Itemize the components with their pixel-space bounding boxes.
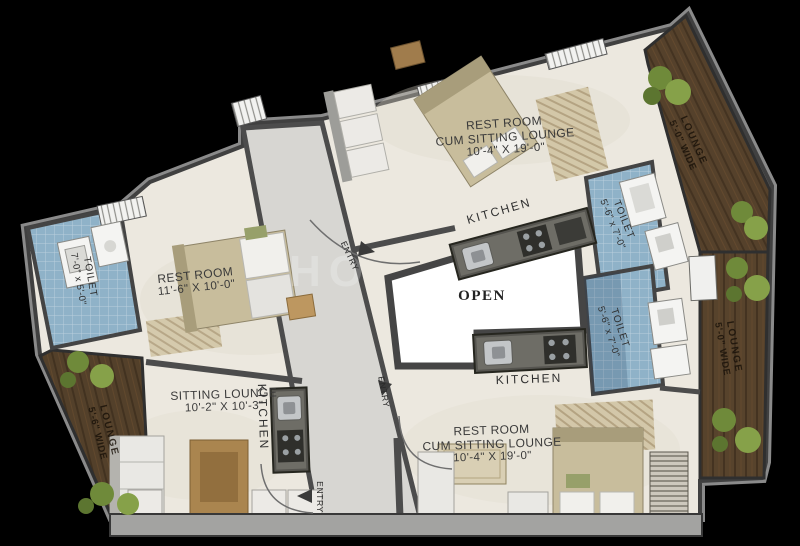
- bottom-wall: [110, 514, 702, 536]
- kitchen-bottom-counter: [473, 329, 587, 373]
- floor-plan-svg: [0, 0, 800, 546]
- bed-bottom-right: [553, 428, 643, 516]
- table-sitting-lounge: [190, 440, 248, 514]
- room-label-kitchen-bottom: KITCHEN: [495, 371, 562, 387]
- room-label-restroom-bottom-right: REST ROOM CUM SITTING LOUNGE 10'-4" X 19…: [422, 421, 563, 468]
- table-top-right: [391, 41, 425, 70]
- table-left: [286, 294, 315, 320]
- entry-label-bottom: ENTRY: [315, 481, 325, 513]
- floor-plan-stage: HO REST ROOM CUM SITTING LOUNGE 10'-4" X…: [0, 0, 800, 546]
- room-label-open: OPEN: [458, 288, 506, 306]
- room-label-kitchen-left: KITCHEN: [255, 383, 271, 450]
- watermark: HO: [289, 247, 371, 297]
- window-right: [689, 255, 717, 300]
